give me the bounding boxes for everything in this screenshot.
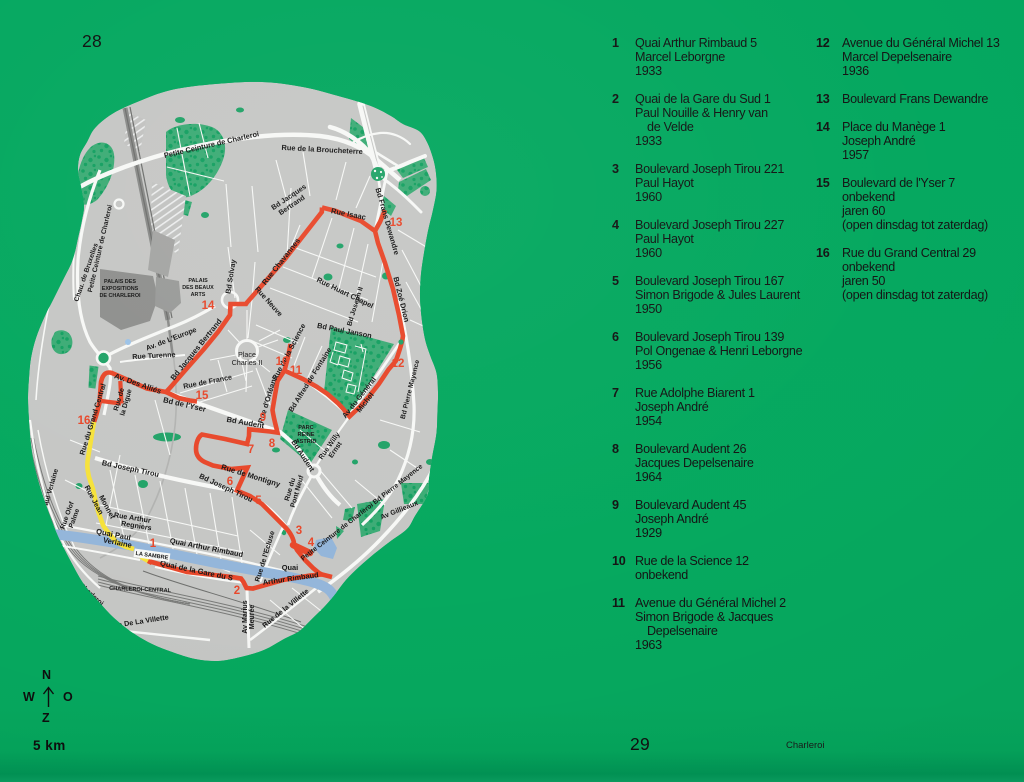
svg-text:11: 11 (290, 365, 303, 377)
svg-text:13: 13 (390, 217, 403, 229)
svg-text:Meurée: Meurée (249, 605, 256, 630)
svg-text:PALAIS DES: PALAIS DES (104, 279, 136, 285)
svg-text:6: 6 (227, 476, 233, 488)
svg-text:16: 16 (78, 415, 91, 427)
svg-text:REINE: REINE (297, 432, 314, 438)
svg-text:PARC: PARC (298, 425, 313, 431)
svg-text:ARTS: ARTS (191, 292, 206, 298)
svg-text:4: 4 (308, 537, 315, 549)
svg-text:EXPOSITIONS: EXPOSITIONS (102, 286, 139, 292)
svg-text:2: 2 (234, 585, 240, 597)
svg-text:7: 7 (248, 444, 254, 456)
svg-text:Quai: Quai (282, 563, 298, 572)
svg-text:Charles II: Charles II (232, 358, 263, 367)
svg-text:ASTRID: ASTRID (296, 439, 317, 445)
svg-text:DE CHARLEROI: DE CHARLEROI (99, 293, 141, 299)
svg-text:14: 14 (202, 300, 215, 312)
svg-text:15: 15 (196, 390, 209, 402)
svg-text:5: 5 (255, 495, 262, 507)
svg-text:10: 10 (276, 356, 289, 368)
svg-text:PALAIS: PALAIS (188, 278, 208, 284)
svg-text:9: 9 (260, 412, 266, 424)
svg-text:8: 8 (269, 438, 276, 450)
svg-text:1: 1 (150, 538, 157, 550)
svg-text:Av Marius: Av Marius (242, 600, 249, 633)
svg-text:12: 12 (392, 358, 405, 370)
svg-text:3: 3 (296, 525, 302, 537)
svg-text:DES BEAUX: DES BEAUX (182, 285, 214, 291)
